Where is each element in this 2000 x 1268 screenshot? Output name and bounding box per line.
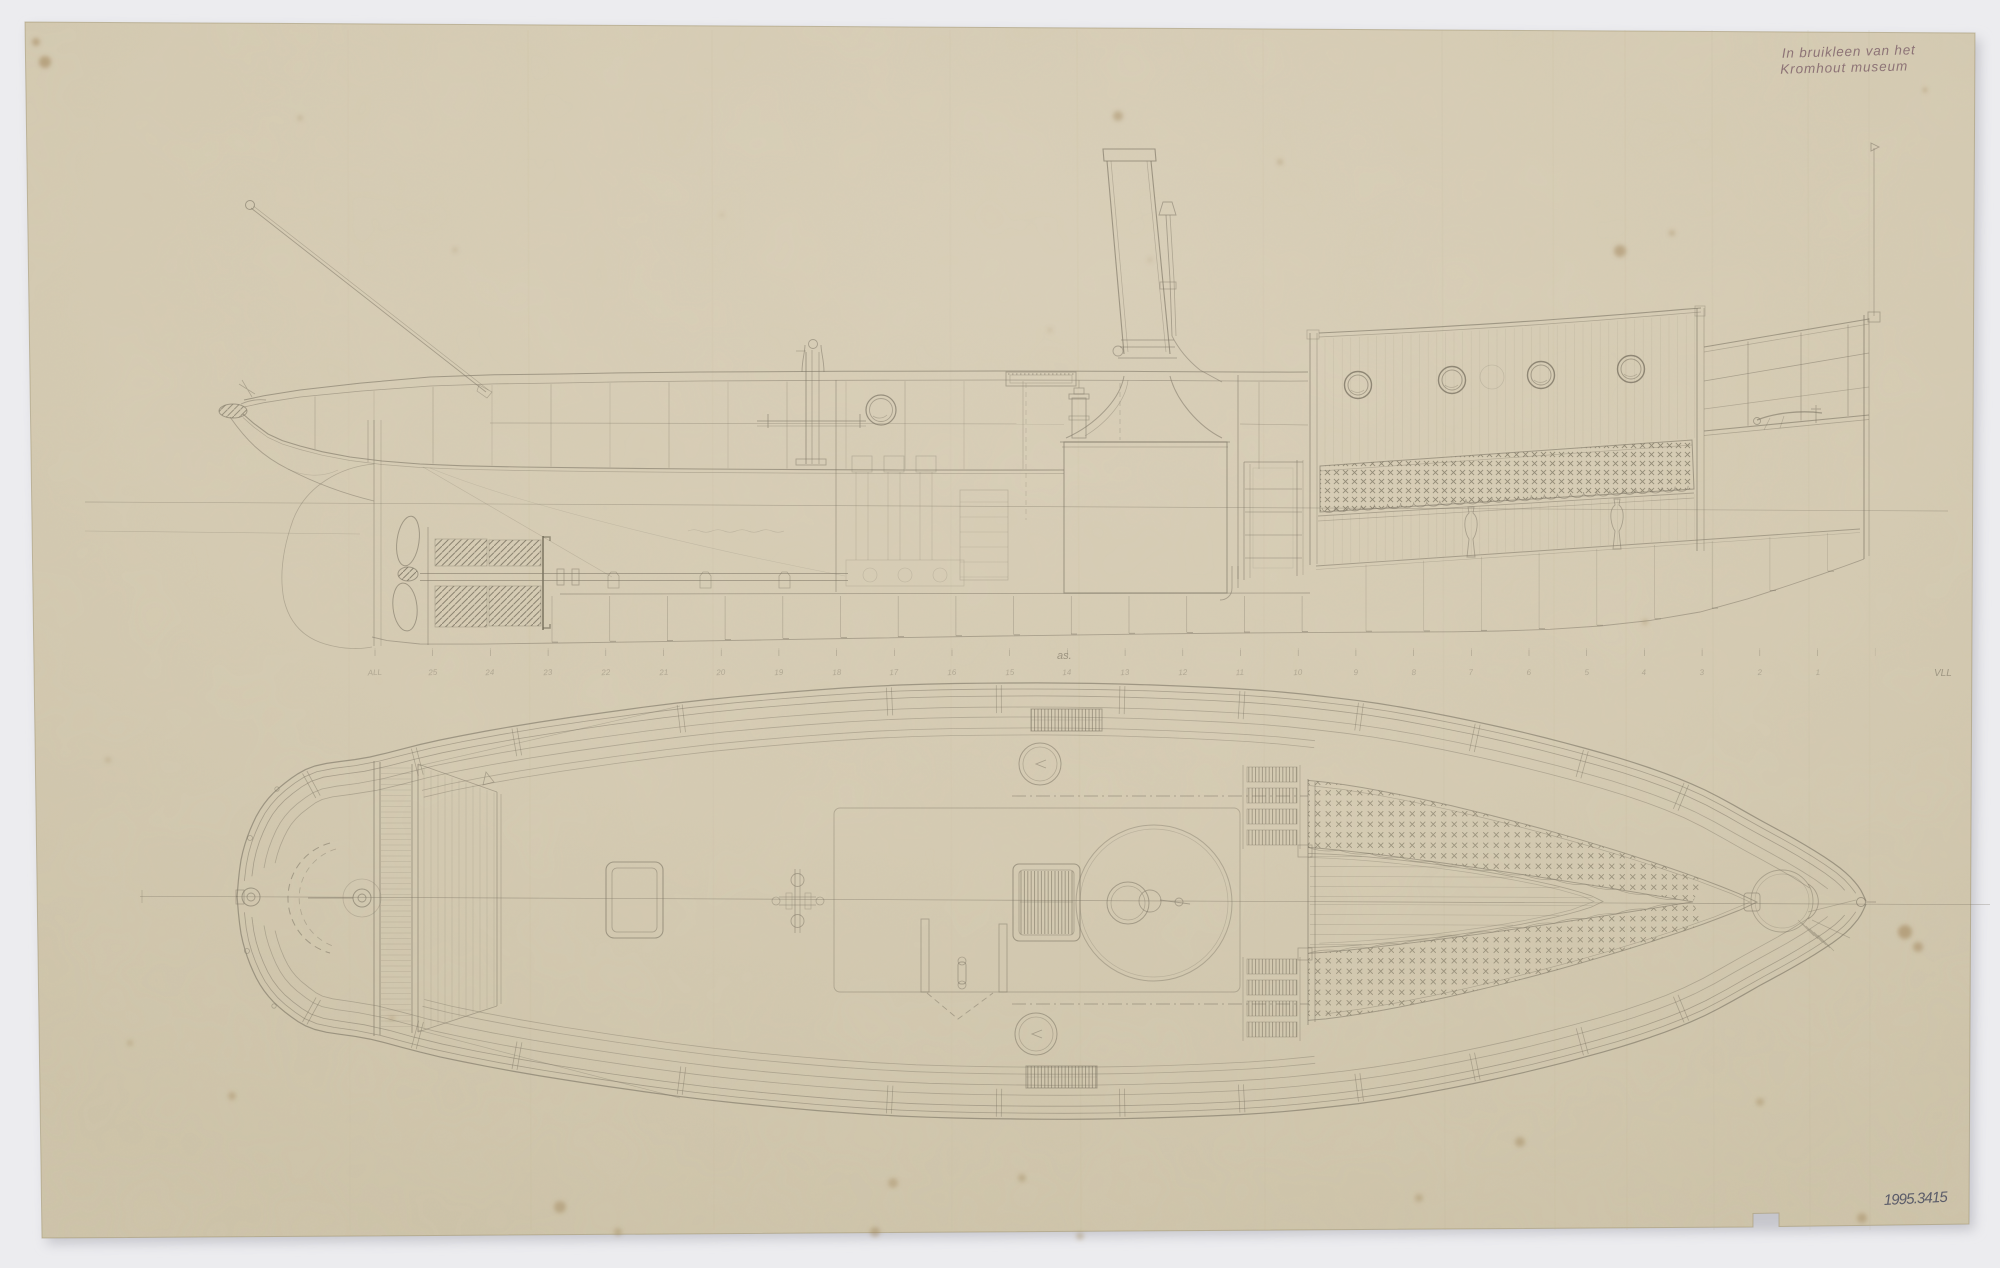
svg-text:1: 1 xyxy=(1815,668,1820,677)
svg-text:18: 18 xyxy=(832,668,842,678)
svg-text:23: 23 xyxy=(542,668,553,678)
svg-text:20: 20 xyxy=(715,668,726,678)
svg-text:VLL: VLL xyxy=(1934,668,1952,679)
svg-text:1995.3415: 1995.3415 xyxy=(1883,1189,1948,1209)
svg-text:22: 22 xyxy=(600,668,611,678)
svg-text:ALL: ALL xyxy=(366,668,382,678)
svg-text:14: 14 xyxy=(1062,668,1072,678)
svg-text:12: 12 xyxy=(1178,668,1188,678)
svg-text:17: 17 xyxy=(889,668,899,678)
svg-text:21: 21 xyxy=(658,668,669,678)
svg-text:25: 25 xyxy=(427,668,438,678)
svg-text:19: 19 xyxy=(774,668,784,678)
svg-text:15: 15 xyxy=(1005,668,1015,678)
svg-text:11: 11 xyxy=(1235,668,1244,678)
svg-text:as.: as. xyxy=(1057,650,1072,662)
svg-text:13: 13 xyxy=(1120,668,1130,678)
svg-text:24: 24 xyxy=(484,668,495,678)
svg-text:10: 10 xyxy=(1293,668,1303,678)
svg-text:16: 16 xyxy=(947,668,957,678)
